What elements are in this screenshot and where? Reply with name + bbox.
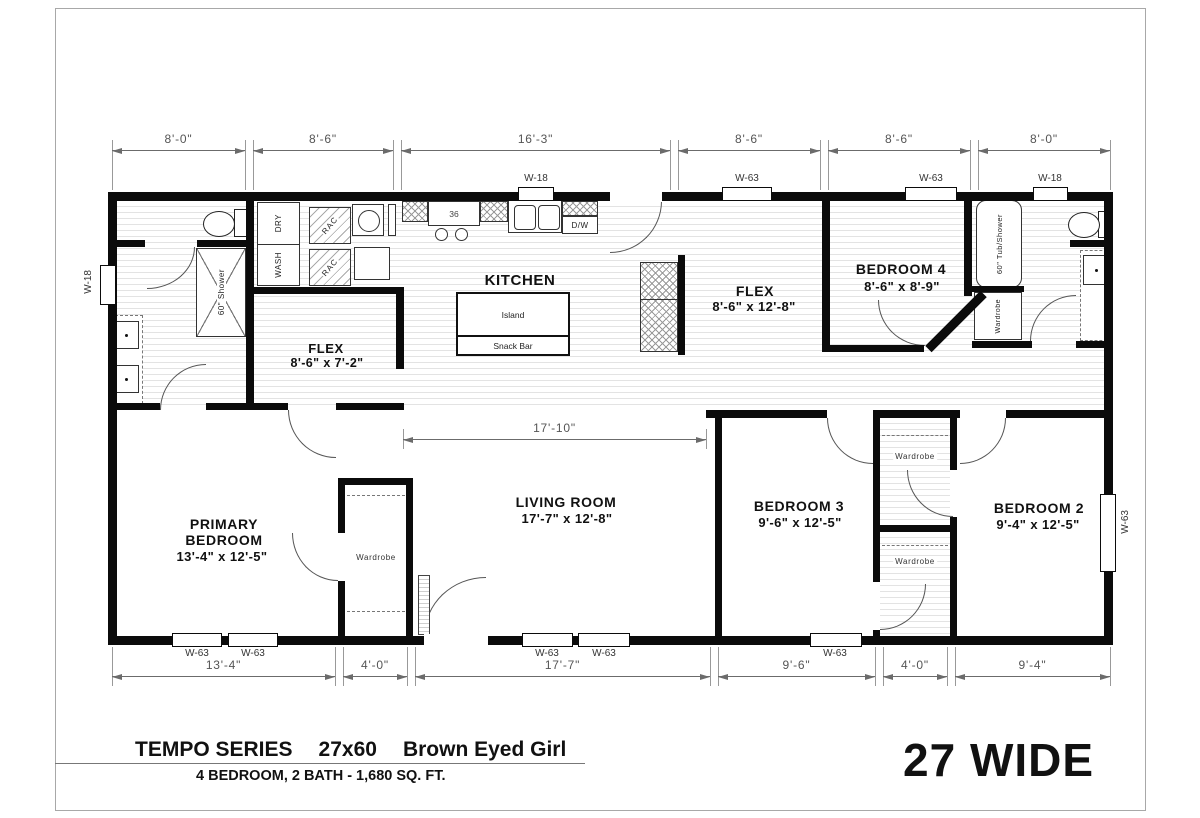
dryer-label: DRY (274, 214, 283, 232)
interior-wall (873, 525, 957, 532)
lavatory-sink-icon (352, 204, 384, 236)
window-w18 (100, 265, 116, 305)
window-w18 (1033, 187, 1068, 201)
rack-shelf: RAC (309, 249, 351, 286)
floor-plan-sheet: W-18 W-63 W-63 W-18 W-18 W-63 W-63 W-63 … (0, 0, 1200, 818)
kitchen-counter (562, 201, 598, 216)
wardrobe-label: Wardrobe (356, 553, 396, 562)
extension-line (970, 140, 971, 190)
room-label-primary-1: PRIMARY (190, 516, 258, 532)
series-name: TEMPO SERIES (135, 738, 293, 761)
rack-label: RAC (320, 214, 341, 237)
extension-line (393, 140, 394, 190)
window-w63 (522, 633, 573, 647)
title-underline (55, 763, 585, 764)
dim-bottom-3: 17'-7" (415, 676, 710, 677)
interior-wall (108, 403, 160, 410)
interior-wall (396, 294, 404, 369)
window-w63 (578, 633, 630, 647)
counter (354, 247, 390, 280)
room-label-flex-front: FLEX (308, 341, 344, 356)
dim-top-3: 16'-3" (401, 150, 670, 151)
dishwasher-label: D/W (571, 221, 588, 230)
extension-line (875, 647, 876, 686)
room-label-kitchen: KITCHEN (485, 272, 556, 289)
extension-line (407, 647, 408, 686)
room-size-bedroom4: 8'-6" x 8'-9" (864, 279, 940, 294)
interior-wall (108, 240, 145, 247)
island-top: Island (458, 294, 568, 337)
wardrobe-shelf-line (347, 495, 405, 496)
toilet-icon (203, 211, 235, 237)
title-line: TEMPO SERIES27x60Brown Eyed Girl (135, 738, 566, 762)
room-label-bedroom4: BEDROOM 4 (856, 261, 946, 277)
interior-wall (1070, 240, 1113, 247)
dim-top-2: 8'-6" (253, 150, 393, 151)
dim-bottom-4: 9'-6" (718, 676, 875, 677)
interior-wall (1076, 341, 1113, 348)
exterior-wall-left (108, 192, 117, 645)
extension-line (947, 647, 948, 686)
window-w63 (172, 633, 222, 647)
window-w63 (722, 187, 772, 201)
window-label: W-63 (919, 173, 943, 184)
extension-line (335, 647, 336, 686)
extension-line (112, 647, 113, 686)
dryer-cell: DRY (258, 203, 299, 245)
room-size-bedroom2: 9'-4" x 12'-5" (996, 517, 1079, 532)
room-size-primary: 13'-4" x 12'-5" (176, 549, 267, 564)
rack-shelf: RAC (309, 207, 351, 244)
mirror-icon (388, 204, 396, 236)
interior-wall (336, 403, 404, 410)
wardrobe-label: Wardrobe (893, 557, 937, 566)
dishwasher-icon: D/W (562, 216, 598, 234)
window-label: W-63 (592, 648, 616, 659)
extension-line (820, 140, 821, 190)
dim-bottom-5: 4'-0" (883, 676, 947, 677)
room-label-flex-mid: FLEX (736, 283, 774, 299)
washer-cell: WASH (258, 245, 299, 286)
interior-wall (950, 418, 957, 470)
dim-living-interior: 17'-10" (403, 439, 706, 440)
room-size-flex-mid: 8'-6" x 12'-8" (712, 299, 795, 314)
window-label: W-63 (735, 173, 759, 184)
room-size-flex-front: 8'-6" x 7'-2" (290, 356, 363, 370)
extension-line (955, 647, 956, 686)
room-label-primary-2: BEDROOM (185, 532, 262, 548)
tub-shower-label: 60" Tub/Shower (995, 214, 1004, 274)
interior-wall (822, 192, 830, 352)
extension-line (706, 429, 707, 449)
dim-bottom-2: 4'-0" (343, 676, 407, 677)
burner-icon (455, 228, 468, 241)
interior-wall (338, 478, 413, 485)
dim-top-6: 8'-0" (978, 150, 1110, 151)
shower-icon: 60" Shower (196, 248, 246, 337)
dim-top-1: 8'-0" (112, 150, 245, 151)
window-label: W-18 (83, 270, 94, 294)
extension-line (718, 647, 719, 686)
interior-wall (972, 286, 1024, 292)
window-w63 (810, 633, 862, 647)
dim-top-5: 8'-6" (828, 150, 970, 151)
interior-wall (972, 341, 1032, 348)
back-door-opening (610, 190, 662, 202)
toilet-icon (1068, 212, 1100, 238)
interior-wall (246, 294, 254, 410)
window-w63 (905, 187, 957, 201)
window-label: W-18 (1038, 173, 1062, 184)
snack-bar: Snack Bar (458, 337, 568, 354)
island-label: Island (502, 310, 525, 320)
range-width-label: 36 (449, 209, 458, 219)
wardrobe-label: Wardrobe (893, 452, 937, 461)
dim-bottom-6: 9'-4" (955, 676, 1110, 677)
interior-wall (1006, 410, 1104, 418)
window-label: W-63 (1120, 510, 1131, 534)
interior-wall (246, 287, 404, 294)
room-label-living: LIVING ROOM (516, 494, 617, 510)
interior-wall (678, 255, 685, 355)
refrigerator-icon (640, 262, 678, 352)
room-label-bedroom3: BEDROOM 3 (754, 498, 844, 514)
extension-line (1110, 140, 1111, 190)
shower-label: 60" Shower (217, 269, 226, 315)
interior-wall (873, 410, 960, 418)
room-size-bedroom3: 9'-6" x 12'-5" (758, 515, 841, 530)
room-size-living: 17'-7" x 12'-8" (521, 511, 612, 526)
kitchen-counter (402, 201, 428, 222)
model-name: Brown Eyed Girl (403, 738, 566, 761)
interior-wall (338, 581, 345, 645)
rack-label: RAC (320, 256, 341, 279)
wardrobe-shelf-line (882, 435, 948, 436)
wardrobe-label: Wardrobe (995, 299, 1002, 333)
range-icon: 36 (428, 201, 480, 226)
window-w63 (228, 633, 278, 647)
dim-bottom-1: 13'-4" (112, 676, 335, 677)
interior-wall (822, 345, 924, 352)
room-label-bedroom2: BEDROOM 2 (994, 500, 1084, 516)
interior-wall (950, 517, 957, 645)
extension-line (710, 647, 711, 686)
washer-dryer-unit: DRY WASH (257, 202, 300, 286)
kitchen-counter (480, 201, 508, 222)
window-w18 (518, 187, 554, 201)
wardrobe-shelf-line (347, 611, 405, 612)
kitchen-sink-icon (508, 199, 562, 233)
snack-bar-label: Snack Bar (493, 341, 532, 351)
window-label: W-63 (823, 648, 847, 659)
model-size: 27x60 (319, 738, 377, 761)
front-door-opening (424, 634, 488, 647)
interior-wall (706, 410, 827, 418)
interior-wall (338, 485, 345, 533)
interior-wall (206, 403, 288, 410)
interior-wall (964, 192, 972, 296)
front-door-leaf (418, 575, 430, 635)
wardrobe-shelf-line (882, 545, 948, 546)
washer-label: WASH (274, 252, 283, 278)
window-label: W-63 (241, 648, 265, 659)
extension-line (245, 140, 246, 190)
interior-wall (246, 192, 254, 294)
extension-line (883, 647, 884, 686)
window-label: W-18 (524, 173, 548, 184)
interior-wall (715, 418, 722, 645)
burner-icon (435, 228, 448, 241)
width-label: 27 WIDE (903, 733, 1094, 787)
interior-wall (406, 478, 413, 645)
extension-line (343, 647, 344, 686)
exterior-wall-right (1104, 192, 1113, 645)
tub-shower-icon: 60" Tub/Shower (976, 200, 1022, 288)
kitchen-island: Island Snack Bar (456, 292, 570, 356)
window-w63 (1100, 494, 1116, 572)
dim-top-4: 8'-6" (678, 150, 820, 151)
title-subtitle: 4 BEDROOM, 2 BATH - 1,680 SQ. FT. (196, 768, 446, 784)
interior-wall (873, 418, 880, 582)
extension-line (670, 140, 671, 190)
extension-line (415, 647, 416, 686)
interior-wall (873, 630, 880, 645)
extension-line (1110, 647, 1111, 686)
